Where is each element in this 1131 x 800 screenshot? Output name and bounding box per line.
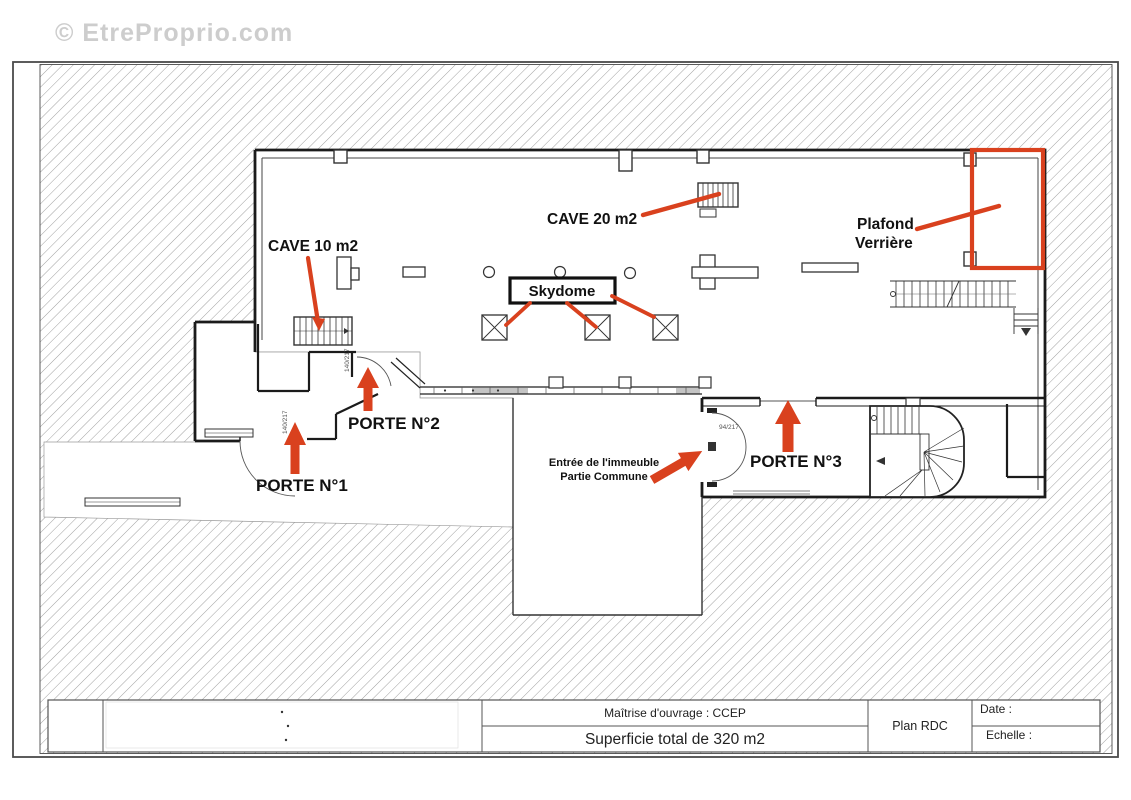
title-superficie: Superficie total de 320 m2 bbox=[585, 731, 765, 748]
skydome-x-box bbox=[653, 315, 678, 340]
label-plafond-line1: Plafond bbox=[857, 216, 914, 233]
label-porte3: PORTE N°3 bbox=[750, 452, 842, 471]
radiator bbox=[205, 429, 253, 437]
label-entree-line1: Entrée de l'immeuble bbox=[549, 457, 659, 469]
title-maitrise: Maîtrise d'ouvrage : CCEP bbox=[604, 706, 746, 720]
entrance-dim-label: 94/217 bbox=[719, 424, 739, 431]
title-block: Maîtrise d'ouvrage : CCEP Superficie tot… bbox=[48, 700, 1100, 752]
label-cave20: CAVE 20 m2 bbox=[547, 211, 637, 228]
floor-plan-canvas: © EtreProprio.com bbox=[0, 0, 1131, 800]
title-plan-name: Plan RDC bbox=[892, 719, 948, 733]
label-porte2: PORTE N°2 bbox=[348, 414, 440, 433]
label-porte1: PORTE N°1 bbox=[256, 476, 348, 495]
label-cave10: CAVE 10 m2 bbox=[268, 238, 358, 255]
skydome-box: Skydome bbox=[510, 278, 615, 303]
beam-bar bbox=[802, 263, 858, 272]
t-column bbox=[337, 257, 351, 289]
small-column bbox=[403, 267, 425, 277]
label-entree-line2: Partie Commune bbox=[560, 471, 647, 483]
title-date-label: Date : bbox=[980, 702, 1012, 716]
stairs-icon-winding bbox=[870, 406, 964, 497]
porte2-dim-label: 140/217 bbox=[344, 348, 351, 372]
skydome-label: Skydome bbox=[529, 283, 596, 300]
title-echelle-label: Echelle : bbox=[986, 728, 1032, 742]
street-threshold bbox=[85, 498, 180, 506]
title-block-logo-area bbox=[106, 702, 458, 748]
label-plafond-line2: Verrière bbox=[855, 235, 913, 252]
watermark: © EtreProprio.com bbox=[55, 19, 293, 47]
skydome-x-box bbox=[482, 315, 507, 340]
porte1-dim-label: 140/217 bbox=[282, 410, 289, 434]
